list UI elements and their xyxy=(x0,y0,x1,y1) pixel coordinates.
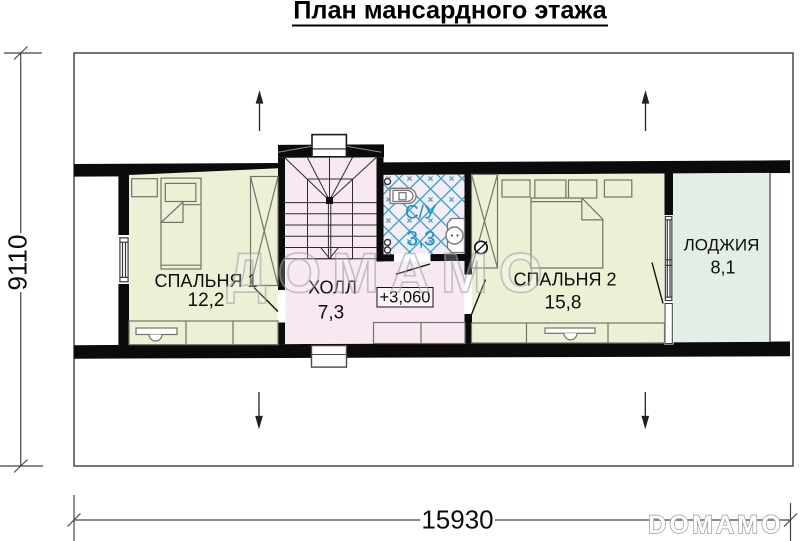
svg-text:9110: 9110 xyxy=(2,235,32,291)
svg-text:ЛОДЖИЯ: ЛОДЖИЯ xyxy=(684,236,760,255)
svg-text:7,3: 7,3 xyxy=(318,303,344,324)
svg-text:С/У: С/У xyxy=(405,203,437,224)
svg-text:DOMAMO: DOMAMO xyxy=(648,511,784,539)
svg-text:План мансардного этажа: План мансардного этажа xyxy=(293,0,607,25)
svg-text:12,2: 12,2 xyxy=(188,290,225,311)
svg-text:ДОМАМО: ДОМАМО xyxy=(227,241,554,304)
svg-text:8,1: 8,1 xyxy=(710,258,735,278)
svg-text:15930: 15930 xyxy=(421,505,493,535)
